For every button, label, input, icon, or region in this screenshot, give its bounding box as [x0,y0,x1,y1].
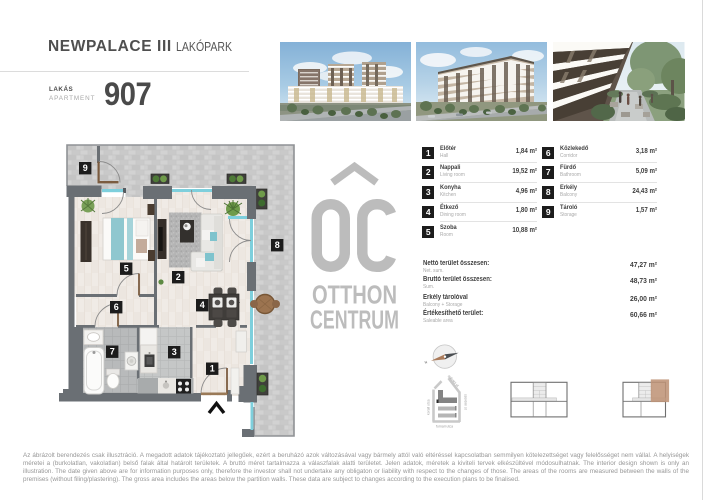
svg-text:9: 9 [83,163,88,173]
svg-text:8: 8 [275,240,280,250]
svg-text:1: 1 [210,364,215,374]
svg-text:szerémi út: szerémi út [464,394,468,410]
svg-text:4: 4 [200,300,205,310]
svg-text:2: 2 [176,272,181,282]
svg-text:5: 5 [124,264,129,274]
svg-text:7: 7 [110,347,115,357]
svg-text:3: 3 [172,347,177,357]
svg-text:CENTRUM: CENTRUM [310,305,399,335]
svg-text:fornari utca: fornari utca [436,425,453,429]
svg-text:N: N [424,360,428,365]
svg-text:korall utca: korall utca [427,399,431,415]
svg-text:6: 6 [114,302,119,312]
